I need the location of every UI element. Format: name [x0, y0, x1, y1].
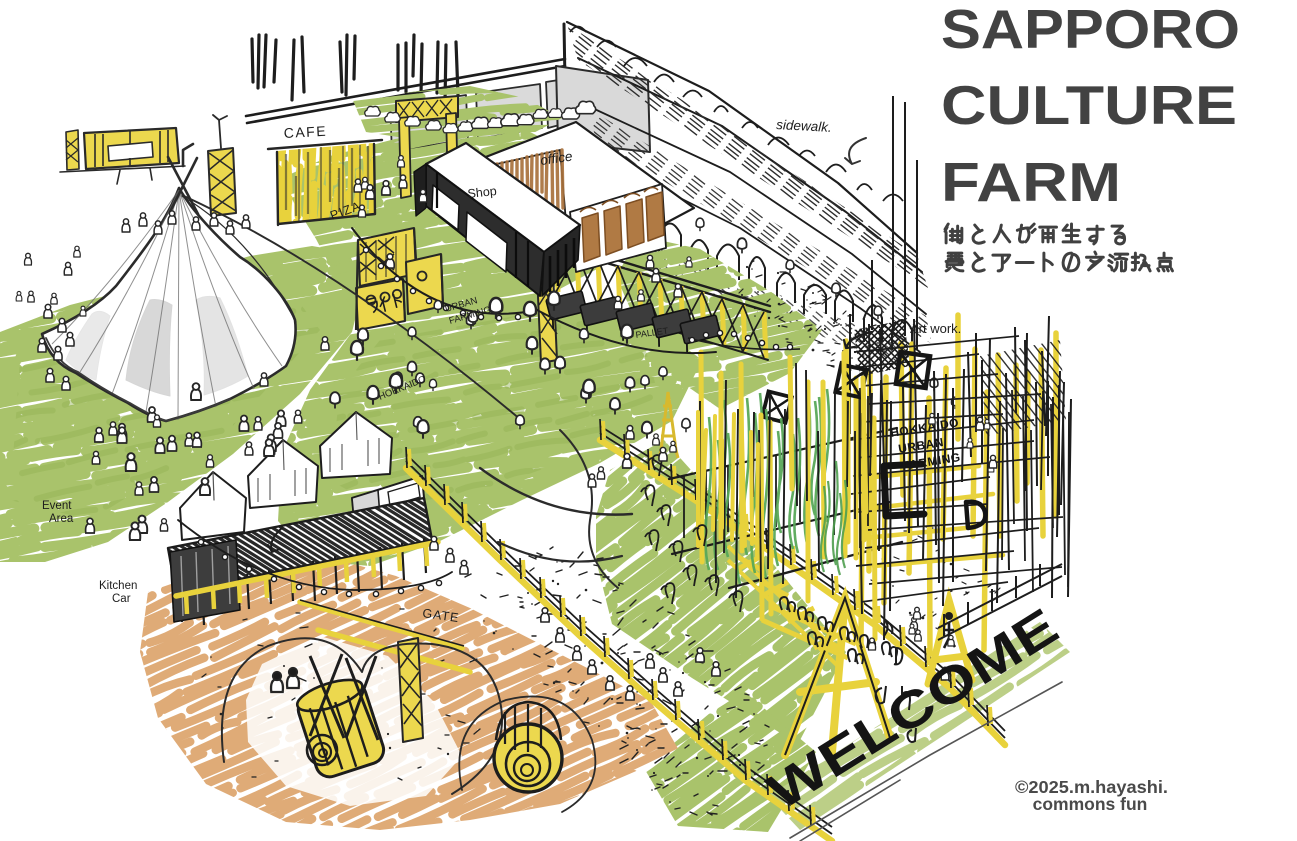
svg-text:CAFE: CAFE: [283, 123, 327, 141]
svg-text:CULTURE: CULTURE: [941, 74, 1237, 136]
svg-text:commons fun: commons fun: [1033, 794, 1148, 814]
svg-text:Area: Area: [49, 513, 74, 525]
svg-text:FARM: FARM: [941, 151, 1121, 213]
svg-text:Kitchen: Kitchen: [99, 580, 137, 592]
svg-text:SAPPORO: SAPPORO: [941, 0, 1240, 60]
svg-text:Event: Event: [42, 500, 72, 512]
svg-text:sidewalk.: sidewalk.: [776, 117, 832, 135]
svg-text:Art work.: Art work.: [910, 321, 961, 336]
svg-text:Car: Car: [112, 593, 131, 605]
